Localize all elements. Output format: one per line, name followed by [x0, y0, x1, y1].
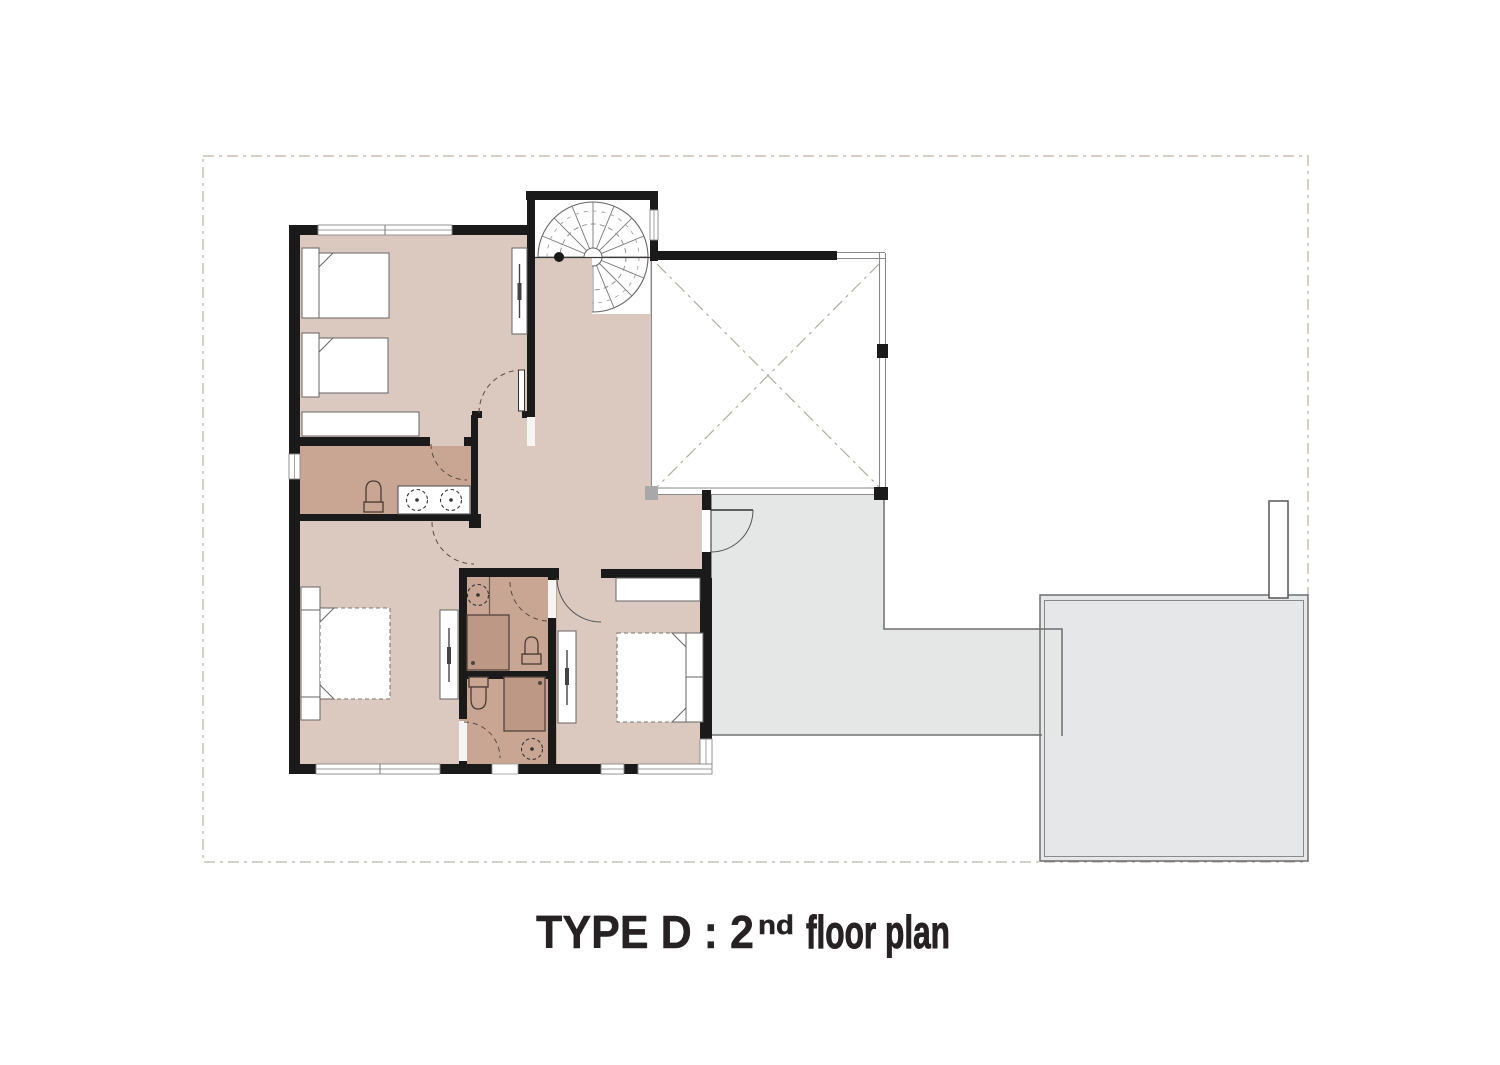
svg-text:TYPE D : 2: TYPE D : 2 — [536, 906, 754, 958]
svg-text:nd: nd — [758, 910, 794, 940]
svg-text:floor plan: floor plan — [806, 906, 950, 958]
